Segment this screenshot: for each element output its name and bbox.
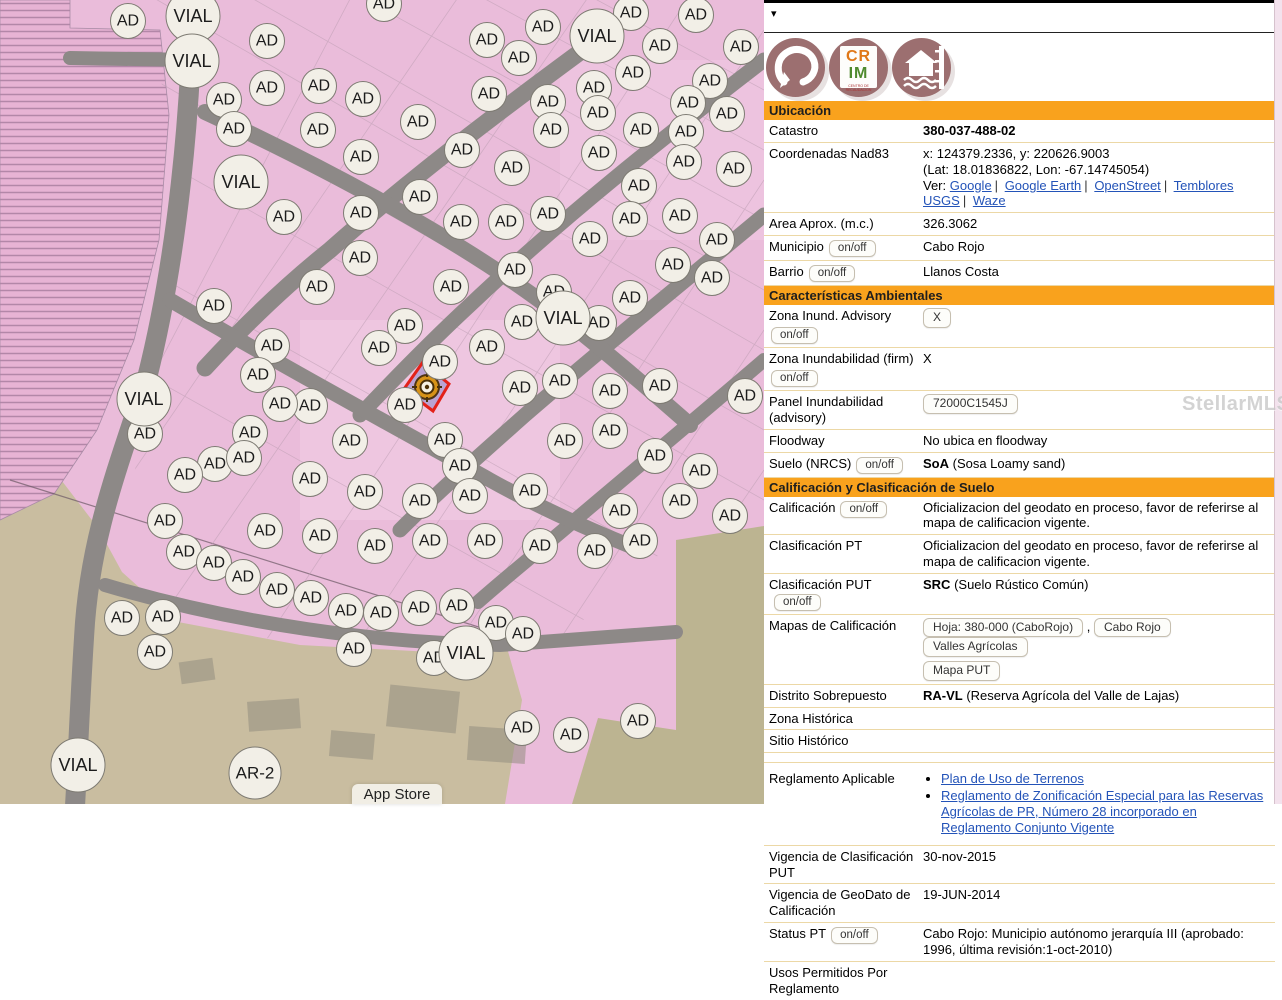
row-barrio: Barrioon/off Llanos Costa: [764, 261, 1275, 286]
svg-text:AD: AD: [134, 426, 156, 443]
row-clasificacion-pt: Clasificación PT Oficializacion del geod…: [764, 535, 1275, 574]
link-separator: |: [1164, 178, 1167, 193]
link-separator: |: [1084, 178, 1087, 193]
coordenadas-links: Ver: Google| Google Earth| OpenStreet| T…: [923, 178, 1270, 210]
link-plan-uso-terrenos[interactable]: Plan de Uso de Terrenos: [941, 771, 1084, 786]
svg-text:AD: AD: [247, 367, 269, 384]
row-zona-historica: Zona Histórica: [764, 708, 1275, 731]
parcel-badge-ad[interactable]: AD: [523, 529, 558, 564]
parcel-badge-ad[interactable]: AD: [513, 474, 548, 509]
status-pt-label: Status PT: [769, 926, 826, 941]
parcel-badge-ad[interactable]: AD: [623, 524, 658, 559]
svg-text:AD: AD: [429, 354, 451, 371]
suelo-desc: (Sosa Loamy sand): [949, 456, 1065, 471]
svg-text:AD: AD: [111, 610, 133, 627]
mapas-mapa-put-button[interactable]: Mapa PUT: [923, 661, 1000, 681]
parcel-badge-ad[interactable]: AD: [362, 331, 397, 366]
distrito-code: RA-VL: [923, 688, 963, 703]
svg-text:AD: AD: [300, 590, 322, 607]
svg-text:AD: AD: [309, 528, 331, 545]
svg-text:AD: AD: [629, 533, 651, 550]
svg-text:AD: AD: [587, 105, 609, 122]
svg-text:AD: AD: [459, 488, 481, 505]
svg-text:AD: AD: [649, 38, 671, 55]
parcel-badge-ad[interactable]: AD: [388, 388, 423, 423]
parcel-badge-vial[interactable]: VIAL: [117, 372, 171, 426]
svg-text:AD: AD: [223, 121, 245, 138]
svg-text:AD: AD: [669, 493, 691, 510]
parcel-badge-ad[interactable]: AD: [197, 289, 232, 324]
barrio-label: Barrio: [769, 264, 804, 279]
parcel-badge-ad[interactable]: AD: [578, 534, 613, 569]
zona-inund-advisory-label: Zona Inund. Advisory: [769, 308, 919, 324]
svg-text:AD: AD: [368, 340, 390, 357]
svg-text:AD: AD: [719, 508, 741, 525]
parcel-badge-ad[interactable]: AD: [168, 458, 203, 493]
parcel-badge-ad[interactable]: AD: [303, 519, 338, 554]
svg-text:AD: AD: [256, 33, 278, 50]
parcel-badge-ad[interactable]: AD: [293, 462, 328, 497]
parcel-info-panel: ▾ CR IM CENTRO DE RECAUDACION: [764, 0, 1275, 804]
svg-text:VIAL: VIAL: [173, 6, 212, 26]
mapas-cabo-rojo-button[interactable]: Cabo Rojo: [1094, 618, 1171, 638]
parcel-badge-ad[interactable]: AD: [679, 0, 714, 33]
parcel-badge-ad[interactable]: AD: [401, 105, 436, 140]
svg-text:AD: AD: [706, 232, 728, 249]
area-value: 326.3062: [923, 216, 1270, 232]
parcel-badge-ad[interactable]: AD: [337, 632, 372, 667]
parcel-badge-ad[interactable]: AD: [403, 484, 438, 519]
row-catastro: Catastro 380-037-488-02: [764, 120, 1275, 143]
parcel-badge-ad[interactable]: AD: [498, 253, 533, 288]
svg-text:AD: AD: [308, 78, 330, 95]
catastro-value: 380-037-488-02: [923, 123, 1270, 139]
svg-text:AD: AD: [584, 543, 606, 560]
svg-text:AD: AD: [339, 433, 361, 450]
distrito-desc: (Reserva Agrícola del Valle de Lajas): [963, 688, 1180, 703]
parcel-badge-ad[interactable]: AD: [663, 199, 698, 234]
row-area: Area Aprox. (m.c.) 326.3062: [764, 213, 1275, 236]
parcel-badge-ad[interactable]: AD: [470, 330, 505, 365]
parcel-badge-ad[interactable]: AD: [440, 589, 475, 624]
parcel-badge-ad[interactable]: AD: [728, 379, 763, 414]
clasificacion-put-code: SRC: [923, 577, 950, 592]
mapas-hoja-button[interactable]: Hoja: 380-000 (CaboRojo): [923, 618, 1083, 638]
row-floodway: Floodway No ubica en floodway: [764, 430, 1275, 453]
clasificacion-put-toggle-button[interactable]: on/off: [774, 594, 821, 611]
svg-text:VIAL: VIAL: [172, 51, 211, 71]
zona-inund-advisory-toggle-button[interactable]: on/off: [771, 327, 818, 344]
barrio-value: Llanos Costa: [923, 264, 1270, 282]
scrollbar[interactable]: [1274, 0, 1282, 804]
svg-text:AD: AD: [529, 538, 551, 555]
parcel-badge-ad[interactable]: AD: [505, 305, 540, 340]
parcel-badge-ad[interactable]: AD: [717, 152, 752, 187]
svg-text:AD: AD: [588, 315, 610, 332]
parcel-badge-vial[interactable]: VIAL: [165, 34, 219, 88]
link-google-earth[interactable]: Google Earth: [1005, 178, 1082, 193]
parcel-badge-ad[interactable]: AD: [505, 711, 540, 746]
zona-inund-advisory-value-button[interactable]: X: [923, 308, 951, 328]
parcel-badge-ad[interactable]: AD: [329, 594, 364, 629]
svg-text:AD: AD: [501, 160, 523, 177]
parcel-badge-ad[interactable]: AD: [710, 97, 745, 132]
parcel-badge-ad[interactable]: AD: [263, 387, 298, 422]
suelo-label: Suelo (NRCS): [769, 456, 851, 471]
municipio-label: Municipio: [769, 239, 824, 254]
svg-text:AD: AD: [579, 231, 601, 248]
coordenadas-label: Coordenadas Nad83: [769, 146, 923, 209]
svg-text:AD: AD: [669, 208, 691, 225]
svg-text:AD: AD: [730, 39, 752, 56]
svg-text:AD: AD: [627, 713, 649, 730]
svg-text:VIAL: VIAL: [577, 26, 616, 46]
parcel-badge-ad[interactable]: AD: [622, 169, 657, 204]
svg-text:AD: AD: [675, 124, 697, 141]
parcel-badge-ad[interactable]: AD: [502, 41, 537, 76]
parcel-badge-ad[interactable]: AD: [434, 270, 469, 305]
svg-text:AD: AD: [599, 383, 621, 400]
parcel-badge-ad[interactable]: AD: [138, 635, 173, 670]
reglamento-label: Reglamento Aplicable: [769, 771, 923, 836]
svg-text:AD: AD: [254, 523, 276, 540]
clasificacion-put-label: Clasificación PUT: [769, 577, 872, 592]
svg-text:AD: AD: [701, 270, 723, 287]
parcel-badge-ad[interactable]: AD: [593, 374, 628, 409]
parcel-badge-ad[interactable]: AD: [603, 494, 638, 529]
parcel-badge-ad[interactable]: AD: [695, 261, 730, 296]
row-vigencia-geodato: Vigencia de GeoDato de Calificación 19-J…: [764, 884, 1275, 923]
parcel-badge-ad[interactable]: AD: [453, 479, 488, 514]
svg-text:AD: AD: [152, 609, 174, 626]
svg-text:AD: AD: [619, 290, 641, 307]
parcel-badge-ad[interactable]: AD: [667, 145, 702, 180]
svg-text:AD: AD: [394, 397, 416, 414]
svg-text:AD: AD: [350, 205, 372, 222]
jp-agency-logo[interactable]: [766, 38, 825, 97]
svg-text:AD: AD: [204, 456, 226, 473]
municipio-toggle-button[interactable]: on/off: [829, 240, 876, 257]
row-clasificacion-put: Clasificación PUTon/off SRC (Suelo Rústi…: [764, 574, 1275, 615]
clasificacion-put-desc: (Suelo Rústico Común): [950, 577, 1088, 592]
vigencia-geodato-label: Vigencia de GeoDato de Calificación: [769, 887, 923, 919]
svg-text:AD: AD: [588, 145, 610, 162]
status-pt-toggle-button[interactable]: on/off: [831, 927, 878, 944]
parcel-badge-ad[interactable]: AD: [543, 364, 578, 399]
svg-text:AD: AD: [599, 423, 621, 440]
parcel-badge-ad[interactable]: AD: [503, 371, 538, 406]
svg-text:VIAL: VIAL: [221, 172, 260, 192]
svg-text:AD: AD: [649, 378, 671, 395]
parcel-badge-ad[interactable]: AD: [333, 424, 368, 459]
parcel-badge-vial[interactable]: VIAL: [214, 155, 268, 209]
ver-prefix: Ver:: [923, 178, 946, 193]
link-openstreet[interactable]: OpenStreet: [1094, 178, 1161, 193]
link-waze[interactable]: Waze: [973, 193, 1006, 208]
agency-logos: CR IM CENTRO DE RECAUDACION: [764, 33, 1275, 101]
parcel-badge-ad[interactable]: AD: [472, 77, 507, 112]
parcel-badge-ad[interactable]: AD: [582, 136, 617, 171]
sitio-historico-label: Sitio Histórico: [769, 733, 923, 749]
svg-text:AD: AD: [560, 727, 582, 744]
floodway-label: Floodway: [769, 433, 923, 449]
section-header-calificacion: Calificación y Clasificación de Suelo: [764, 478, 1275, 497]
parcel-badge-ad[interactable]: AD: [344, 140, 379, 175]
svg-text:AD: AD: [434, 432, 456, 449]
vigencia-put-label: Vigencia de Clasificación PUT: [769, 849, 923, 881]
mapas-valles-agricolas-button[interactable]: Valles Agrícolas: [923, 637, 1028, 657]
svg-text:AD: AD: [685, 7, 707, 24]
row-zona-inund-advisory: Zona Inund. Advisory on/off X: [764, 305, 1275, 348]
svg-text:AD: AD: [354, 484, 376, 501]
svg-text:AD: AD: [630, 122, 652, 139]
svg-text:AD: AD: [261, 338, 283, 355]
svg-text:AD: AD: [299, 398, 321, 415]
parcel-badge-ad[interactable]: AD: [643, 369, 678, 404]
suelo-toggle-button[interactable]: on/off: [856, 457, 903, 474]
vigencia-put-value: 30-nov-2015: [923, 849, 1270, 881]
row-sitio-historico: Sitio Histórico: [764, 730, 1275, 753]
svg-text:AD: AD: [540, 122, 562, 139]
parcel-badge-vial[interactable]: VIAL: [51, 738, 105, 792]
row-mapas: Mapas de Calificación Hoja: 380-000 (Cab…: [764, 615, 1275, 685]
map-canvas[interactable]: ADADADADADADADADADADADADADADADADADADADAD…: [0, 0, 764, 804]
svg-text:AD: AD: [373, 0, 395, 13]
svg-text:AD: AD: [343, 641, 365, 658]
spacer-row: [764, 753, 1275, 763]
link-separator: |: [995, 178, 998, 193]
svg-text:AD: AD: [734, 388, 756, 405]
svg-text:AD: AD: [537, 206, 559, 223]
row-panel-inundabilidad: Panel Inundabilidad (advisory) 72000C154…: [764, 391, 1275, 430]
parcel-badge-ad[interactable]: AD: [248, 514, 283, 549]
row-coordenadas: Coordenadas Nad83 x: 124379.2336, y: 220…: [764, 143, 1275, 213]
parcel-badge-ad[interactable]: AD: [616, 56, 651, 91]
section-header-ubicacion: Ubicación: [764, 101, 1275, 120]
parcel-badge-ad[interactable]: AD: [683, 454, 718, 489]
parcel-badge-ad[interactable]: AD: [402, 591, 437, 626]
usos-label: Usos Permitidos Por Reglamento: [769, 965, 923, 997]
mapas-label: Mapas de Calificación: [769, 618, 923, 681]
svg-text:AD: AD: [299, 471, 321, 488]
parcel-badge-ad[interactable]: AD: [146, 600, 181, 635]
parcel-badge-ad[interactable]: AD: [444, 205, 479, 240]
parcel-badge-ad[interactable]: AD: [260, 573, 295, 608]
parcel-badge-ad[interactable]: AD: [724, 30, 759, 65]
list-item: Reglamento de Zonificación Especial para…: [941, 788, 1270, 836]
parcel-badge-ad[interactable]: AD: [700, 223, 735, 258]
parcel-badge-ad[interactable]: AD: [624, 113, 659, 148]
svg-text:AD: AD: [619, 211, 641, 228]
svg-text:AD: AD: [232, 569, 254, 586]
parcel-badge-ad[interactable]: AD: [548, 424, 583, 459]
parcel-badge-ad[interactable]: AD: [302, 69, 337, 104]
svg-text:AD: AD: [478, 86, 500, 103]
svg-text:AD: AD: [352, 91, 374, 108]
svg-text:AD: AD: [117, 13, 139, 30]
svg-text:AD: AD: [350, 149, 372, 166]
svg-text:AD: AD: [144, 644, 166, 661]
parcel-badge-ad[interactable]: AD: [348, 475, 383, 510]
parcel-badge-vial[interactable]: VIAL: [439, 626, 493, 680]
svg-text:AD: AD: [451, 142, 473, 159]
svg-text:AD: AD: [495, 214, 517, 231]
svg-text:AD: AD: [446, 598, 468, 615]
svg-text:AD: AD: [256, 80, 278, 97]
svg-text:AD: AD: [554, 433, 576, 450]
parcel-badge-ad[interactable]: AD: [358, 529, 393, 564]
parcel-badge-ad[interactable]: AD: [621, 704, 656, 739]
panel-topbar: ▾: [764, 0, 1275, 33]
svg-text:AD: AD: [677, 95, 699, 112]
svg-text:AD: AD: [622, 65, 644, 82]
zona-inund-firm-label: Zona Inundabilidad (firm): [769, 351, 919, 367]
svg-text:AD: AD: [609, 503, 631, 520]
parcel-badge-ad[interactable]: AD: [638, 439, 673, 474]
parcel-badge-ad[interactable]: AD: [593, 414, 628, 449]
parcel-badge-ad[interactable]: AD: [506, 617, 541, 652]
parcel-badge-ad[interactable]: AD: [227, 441, 262, 476]
parcel-badge-ad[interactable]: AD: [581, 96, 616, 131]
svg-text:AR-2: AR-2: [236, 764, 275, 783]
svg-text:VIAL: VIAL: [543, 308, 582, 328]
parcel-badge-ad[interactable]: AD: [294, 581, 329, 616]
zona-inund-firm-value: X: [923, 351, 1270, 387]
parcel-badge-ad[interactable]: AD: [445, 133, 480, 168]
parcel-badge-ad[interactable]: AD: [613, 202, 648, 237]
svg-text:AD: AD: [485, 615, 507, 632]
parcel-badge-ad[interactable]: AD: [489, 205, 524, 240]
parcel-badge-vial[interactable]: VIAL: [536, 291, 590, 345]
parcel-badge-ad[interactable]: AD: [250, 24, 285, 59]
svg-text:AD: AD: [532, 19, 554, 36]
row-suelo: Suelo (NRCS)on/off SoA (Sosa Loamy sand): [764, 453, 1275, 478]
svg-text:AD: AD: [716, 106, 738, 123]
parcel-badge-ad[interactable]: AD: [663, 484, 698, 519]
parcel-badge-ad[interactable]: AD: [403, 180, 438, 215]
mapas-comma: ,: [1087, 619, 1091, 634]
parcel-badge-ad[interactable]: AD: [413, 524, 448, 559]
flood-zone-logo[interactable]: [892, 38, 951, 97]
list-item: Plan de Uso de Terrenos: [941, 771, 1270, 787]
clasificacion-pt-value: Oficializacion del geodato en proceso, f…: [923, 538, 1270, 570]
parcel-badge-ad[interactable]: AD: [554, 718, 589, 753]
parcel-badge-vial[interactable]: VIAL: [570, 9, 624, 63]
svg-text:AD: AD: [440, 279, 462, 296]
svg-text:AD: AD: [174, 467, 196, 484]
svg-text:AD: AD: [449, 458, 471, 475]
row-reglamento: Reglamento Aplicable Plan de Uso de Terr…: [764, 763, 1275, 845]
parcel-badge-ad[interactable]: AD: [344, 196, 379, 231]
panel-inundabilidad-value-button[interactable]: 72000C1545J: [923, 394, 1018, 414]
parcel-badge-ad[interactable]: AD: [241, 358, 276, 393]
parcel-badge-ad[interactable]: AD: [105, 601, 140, 636]
section-header-ambientales: Características Ambientales: [764, 286, 1275, 305]
parcel-badge-ad[interactable]: AD: [226, 560, 261, 595]
parcel-badge-ad[interactable]: AD: [526, 10, 561, 45]
svg-text:AD: AD: [213, 92, 235, 109]
parcel-badge-ad[interactable]: AD: [534, 113, 569, 148]
parcel-badge-ad[interactable]: AD: [148, 504, 183, 539]
svg-text:AD: AD: [370, 605, 392, 622]
area-label: Area Aprox. (m.c.): [769, 216, 923, 232]
parcel-badge-ad[interactable]: AD: [111, 4, 146, 39]
coordenadas-xy: x: 124379.2336, y: 220626.9003: [923, 146, 1270, 162]
link-reglamento-zonificacion[interactable]: Reglamento de Zonificación Especial para…: [941, 788, 1263, 835]
parcel-badge-ad[interactable]: AD: [573, 222, 608, 257]
distrito-label: Distrito Sobrepuesto: [769, 688, 923, 704]
calificacion-toggle-button[interactable]: on/off: [840, 501, 887, 518]
svg-text:AD: AD: [662, 257, 684, 274]
clasificacion-pt-label: Clasificación PT: [769, 538, 923, 570]
calificacion-value: Oficializacion del geodato en proceso, f…: [923, 500, 1270, 532]
svg-text:VIAL: VIAL: [58, 755, 97, 775]
svg-text:AD: AD: [269, 396, 291, 413]
zona-inund-firm-toggle-button[interactable]: on/off: [771, 370, 818, 387]
parcel-badge-ad[interactable]: AD: [250, 71, 285, 106]
svg-text:AD: AD: [233, 450, 255, 467]
barrio-toggle-button[interactable]: on/off: [809, 265, 856, 282]
row-distrito: Distrito Sobrepuesto RA-VL (Reserva Agrí…: [764, 685, 1275, 708]
parcel-badge-ad[interactable]: AD: [713, 499, 748, 534]
svg-text:AD: AD: [419, 533, 441, 550]
parcel-badge-ad[interactable]: AD: [300, 270, 335, 305]
parcel-badge-ad[interactable]: AD: [656, 248, 691, 283]
parcel-badge-ad[interactable]: AD: [343, 241, 378, 276]
svg-text:AD: AD: [504, 262, 526, 279]
svg-text:AD: AD: [307, 122, 329, 139]
crim-agency-logo[interactable]: CR IM CENTRO DE RECAUDACION: [829, 38, 888, 97]
parcel-badge-ad[interactable]: AD: [423, 345, 458, 380]
svg-text:VIAL: VIAL: [446, 643, 485, 663]
link-google[interactable]: Google: [950, 178, 992, 193]
parcel-badge-ad[interactable]: AD: [613, 281, 648, 316]
row-usos: Usos Permitidos Por Reglamento: [764, 962, 1275, 1000]
parcel-badge-ad[interactable]: AD: [267, 200, 302, 235]
parcel-badge-ad[interactable]: AD: [301, 113, 336, 148]
svg-text:AD: AD: [509, 380, 531, 397]
parcel-badge-ad[interactable]: AD: [217, 112, 252, 147]
parcel-badge-ad[interactable]: AD: [364, 596, 399, 631]
parcel-badge-ad[interactable]: AD: [643, 29, 678, 64]
row-municipio: Municipioon/off Cabo Rojo: [764, 236, 1275, 261]
svg-text:AD: AD: [508, 50, 530, 67]
svg-text:AD: AD: [306, 279, 328, 296]
svg-text:AD: AD: [394, 318, 416, 335]
parcel-badge-ad[interactable]: AD: [531, 197, 566, 232]
parcel-badge-ad[interactable]: AD: [346, 82, 381, 117]
svg-text:AD: AD: [239, 425, 261, 442]
svg-text:AD: AD: [519, 483, 541, 500]
vigencia-geodato-value: 19-JUN-2014: [923, 887, 1270, 919]
svg-text:AD: AD: [673, 154, 695, 171]
parcel-badge-ad[interactable]: AD: [470, 23, 505, 58]
svg-text:AD: AD: [266, 582, 288, 599]
svg-text:AD: AD: [628, 178, 650, 195]
svg-text:AD: AD: [620, 5, 642, 22]
panel-inundabilidad-label: Panel Inundabilidad (advisory): [769, 394, 923, 426]
svg-text:AD: AD: [537, 94, 559, 111]
svg-text:AD: AD: [476, 339, 498, 356]
parcel-badge-ad[interactable]: AD: [468, 524, 503, 559]
chevron-down-icon[interactable]: ▾: [771, 8, 777, 20]
parcel-badge-ar2[interactable]: AR-2: [229, 747, 281, 799]
parcel-badge-ad[interactable]: AD: [495, 151, 530, 186]
svg-text:AD: AD: [689, 463, 711, 480]
svg-text:AD: AD: [511, 314, 533, 331]
app-store-banner[interactable]: App Store: [352, 784, 442, 804]
link-separator: |: [963, 193, 966, 208]
